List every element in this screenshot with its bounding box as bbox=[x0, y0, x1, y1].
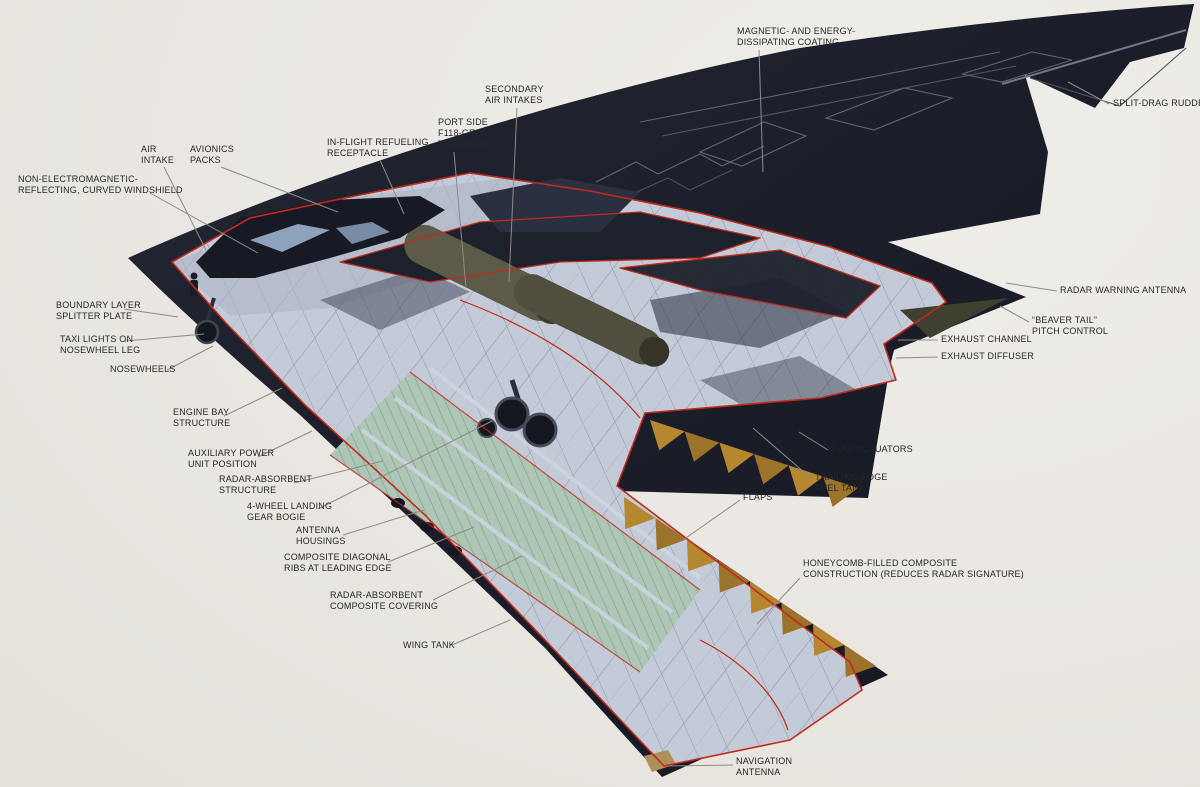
leader-boundary-layer-plate bbox=[124, 309, 178, 317]
leader-nosewheels bbox=[167, 346, 213, 370]
leader-apu-position bbox=[258, 431, 312, 457]
leader-beaver-tail bbox=[1000, 306, 1029, 322]
b2-cutaway-page: { "diagram": { "subject": "Northrop B-2 … bbox=[0, 0, 1200, 787]
leader-engine-bay-structure bbox=[224, 388, 282, 416]
aircraft-illustration bbox=[0, 0, 1200, 787]
leader-radar-warning-antenna bbox=[1006, 283, 1057, 291]
leader-antenna-housings bbox=[343, 510, 424, 535]
leader-wing-tank bbox=[452, 620, 510, 645]
b2-cutaway-diagram: MAGNETIC- AND ENERGY-DISSIPATING COATING… bbox=[0, 0, 1200, 787]
leader-exhaust-diffuser bbox=[896, 357, 938, 358]
leader-flaps bbox=[683, 500, 740, 540]
leader-taxi-lights bbox=[125, 334, 204, 341]
